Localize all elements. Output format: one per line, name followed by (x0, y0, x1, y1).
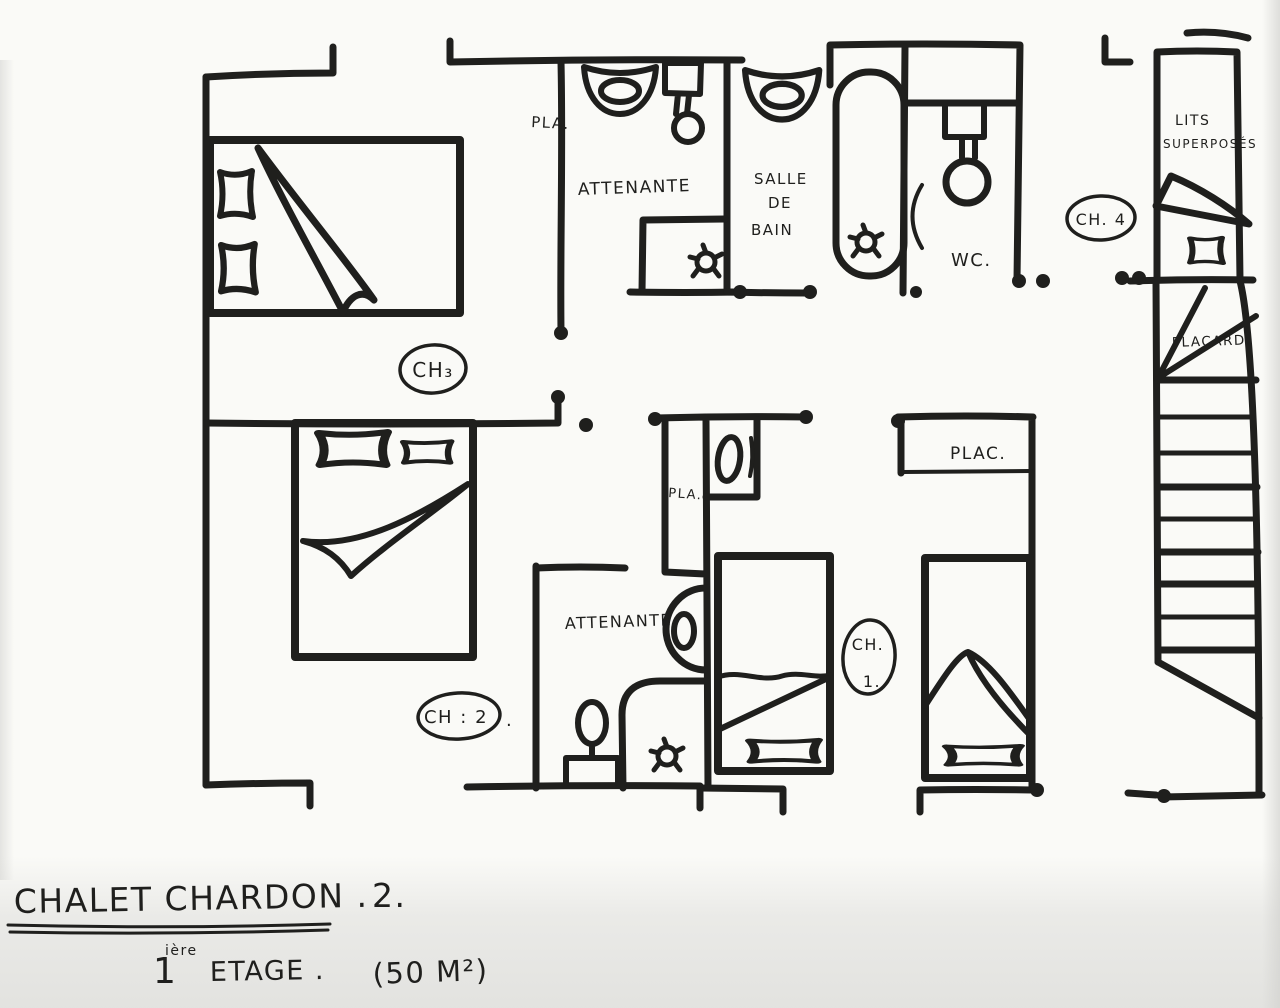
label-sdb-2: DE (768, 194, 792, 212)
pillow (319, 432, 388, 465)
wall-bottom-mid-a (467, 786, 700, 808)
footer-title-number: 2. (372, 876, 407, 915)
label-ch1-line2: 1. (863, 672, 881, 691)
label-ch2: CH : 2 (424, 707, 488, 728)
blanket-fold (303, 484, 468, 576)
door-dot (1030, 783, 1044, 797)
label-bunks-2: SUPERPOSÉS (1163, 136, 1257, 151)
pedestal-sink-bowl (578, 702, 606, 744)
blanket-mountain (925, 652, 1030, 735)
label-closet-ch1: PLAC. (950, 444, 1006, 464)
pillow (750, 740, 819, 762)
door-swing-arc (913, 185, 923, 248)
title-underline (8, 924, 330, 933)
door-dot (551, 390, 565, 404)
label-wc: WC. (951, 250, 992, 271)
wc-neck (962, 137, 975, 158)
door-dot (733, 285, 747, 299)
staircase (1158, 288, 1259, 718)
sink-icon (745, 70, 819, 119)
pillow (220, 171, 253, 217)
label-ch1-line1: CH. (852, 635, 885, 654)
round-sink-drain (674, 614, 694, 648)
door-dot (891, 414, 905, 428)
wall-bottom-mid-b (700, 788, 783, 812)
wall-top-tick (1105, 38, 1130, 62)
wall-top-mid (450, 41, 742, 62)
wall-bunk-divider (1130, 280, 1253, 281)
wall-top-ch3 (206, 47, 333, 77)
sink-icon (584, 67, 656, 114)
bunk-bed-blanket (1156, 176, 1249, 224)
label-ch2-dot: . (506, 710, 513, 731)
stair-diagonal (1158, 662, 1259, 718)
footer-floor-sup: ière (165, 943, 198, 959)
wall-toilet-box (706, 420, 757, 497)
door-dot (1115, 271, 1129, 285)
bathtub-icon (836, 72, 904, 276)
wall-bathroom2-top (536, 567, 625, 568)
bathtub-drain-icon (850, 225, 882, 256)
label-stairs-placard: PLACARD. (1172, 332, 1252, 351)
label-closet-mid: PLA. (668, 486, 703, 503)
door-dot (803, 285, 817, 299)
door-dot (910, 286, 922, 298)
wall-ch3-bathroom-divider (561, 62, 562, 331)
pillow (947, 746, 1021, 765)
door-dot (799, 410, 813, 424)
toilet-drain-icon (690, 245, 722, 276)
label-bubbles (398, 195, 1135, 741)
pillow (1190, 238, 1223, 264)
label-closet-top: PLA. (531, 113, 570, 133)
wall-stair-left (1156, 281, 1158, 662)
blanket-line (718, 674, 830, 678)
wall-stair-bottom (1162, 795, 1262, 797)
door-markers (551, 271, 1171, 803)
scanned-floorplan-page: PLA. ATTENANTE SALLE DE BAIN WC. CH. 4 L… (0, 0, 1280, 1008)
door-dot (554, 326, 568, 340)
wall-bottom-right-stub (1128, 793, 1156, 795)
shower-drain-icon (651, 739, 683, 770)
wc-cistern-icon (945, 103, 984, 137)
label-ch4: CH. 4 (1076, 210, 1127, 229)
footer-area: (50 M²) (372, 953, 489, 991)
toilet-seat-line (750, 438, 752, 476)
footer-title: CHALET CHARDON . 2. 1 ière ETAGE . (50 M… (8, 876, 489, 992)
footer-floor-word: ETAGE . (210, 955, 326, 988)
label-bunks-1: LITS (1175, 113, 1210, 129)
blanket-diagonal (720, 678, 828, 729)
label-ensuite-top: ATTENANTE (577, 176, 691, 200)
toilet-bowl-icon (715, 436, 743, 483)
shower-head-icon (674, 114, 702, 142)
footer-title-main: CHALET CHARDON . (13, 876, 368, 921)
shower-stall-icon (622, 681, 706, 788)
label-ensuite-bottom: ATTENANTE (564, 610, 672, 633)
label-ch3: CH₃ (412, 358, 454, 382)
wall-bottom-mid-c (920, 790, 1032, 813)
shower-head-icon (665, 63, 701, 114)
label-sdb-3: BAIN (751, 221, 793, 239)
wall-closet-ch1-bottom (903, 471, 1031, 472)
wall-bottom-ch2 (206, 783, 310, 806)
label-sdb-1: SALLE (754, 170, 808, 188)
wc-bowl-icon (946, 161, 988, 203)
door-dot (648, 412, 662, 426)
door-dot (1012, 274, 1026, 288)
blanket-fold (258, 148, 374, 312)
door-dot (1132, 271, 1146, 285)
door-dot (1157, 789, 1171, 803)
pedestal-sink-base (566, 758, 618, 786)
wall-stair-outer-top (1187, 32, 1248, 38)
wall-bunkroom (1157, 51, 1240, 280)
pillow (403, 441, 451, 462)
door-dot (1036, 274, 1050, 288)
door-dot (579, 418, 593, 432)
pillow (221, 244, 256, 292)
floorplan-svg: PLA. ATTENANTE SALLE DE BAIN WC. CH. 4 L… (0, 0, 1280, 1008)
